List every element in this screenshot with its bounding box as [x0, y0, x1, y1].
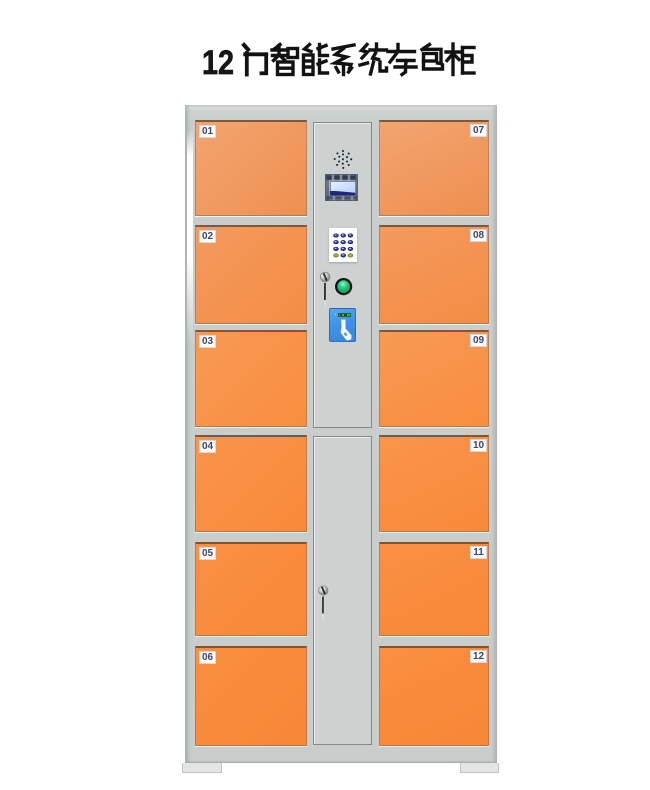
svg-text:12: 12 — [202, 44, 234, 82]
